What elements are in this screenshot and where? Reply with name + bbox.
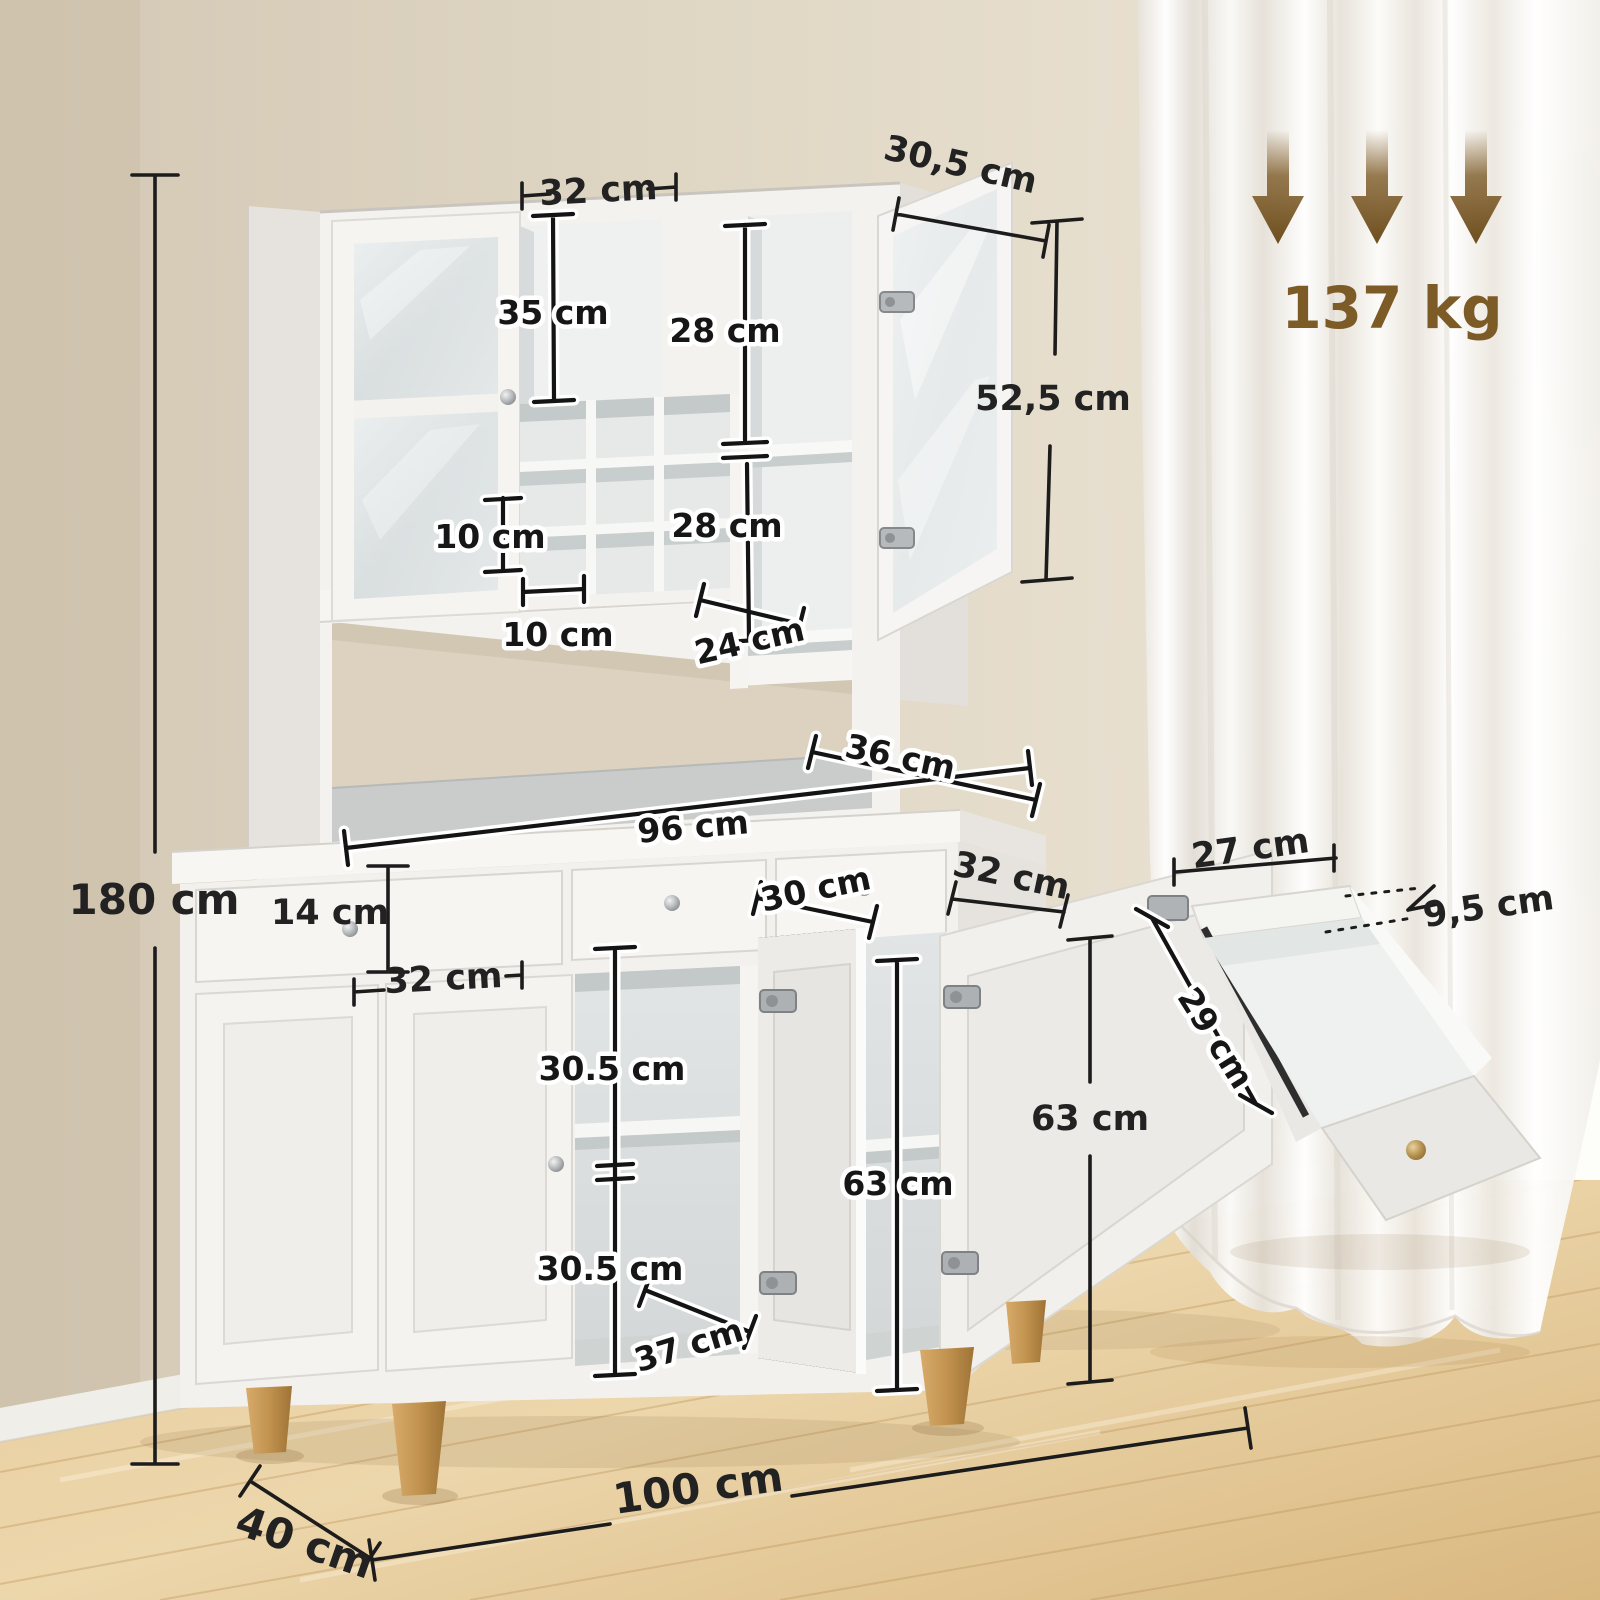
hinge-icon <box>760 1272 796 1294</box>
wood-leg <box>246 1386 292 1454</box>
dim-drawer-front-height: 14 cm <box>271 893 389 933</box>
dim-left-door-width: 32 cm <box>383 956 503 1002</box>
door-knob-icon[interactable] <box>548 1156 564 1172</box>
dim-top-compartment-height: 35 cm <box>497 293 608 332</box>
dim-base-door-height-outer: 63 cm <box>1031 1099 1149 1139</box>
dim-top-compartment-width: 32 cm <box>538 168 658 214</box>
drawer-knob-icon <box>1406 1140 1426 1160</box>
dim-shelf-space-lower: 30.5 cm <box>537 1249 684 1288</box>
wine-rack-grid <box>520 394 730 610</box>
hinge-icon <box>760 990 796 1012</box>
dim-upper-shelf-height-2: 28 cm <box>671 506 782 545</box>
base-door-closed-left2[interactable] <box>386 975 572 1371</box>
dim-shelf-space-upper: 30.5 cm <box>539 1049 686 1088</box>
product-dimension-diagram: 137 kg 32 cm 30,5 cm 35 cm 28 cm 28 cm 5… <box>0 0 1600 1600</box>
drawer-knob-icon[interactable] <box>664 895 680 911</box>
base-right-opening <box>866 932 946 1360</box>
hinge-icon <box>880 292 914 312</box>
hutch-right-compartment <box>748 211 852 656</box>
hutch-left-side <box>248 206 320 866</box>
wood-leg <box>1006 1300 1046 1364</box>
dim-base-door-height-inner: 63 cm <box>842 1164 953 1203</box>
hinge-icon <box>942 1252 978 1274</box>
hinge-icon <box>944 986 980 1008</box>
dim-glass-door-height: 52,5 cm <box>975 379 1131 419</box>
hutch-glass-door-left[interactable] <box>332 212 520 621</box>
dim-upper-shelf-height-1: 28 cm <box>669 311 780 350</box>
dim-cubby-width: 10 cm <box>502 615 613 654</box>
hinge-icon <box>880 528 914 548</box>
base-door-open-middle[interactable] <box>758 928 866 1374</box>
dim-cubby-height: 10 cm <box>434 517 545 556</box>
base-door-closed-left[interactable] <box>196 985 378 1384</box>
load-weight-label: 137 kg <box>1281 274 1502 342</box>
dim-overall-height: 180 cm <box>69 875 240 924</box>
door-knob-icon[interactable] <box>500 389 516 405</box>
